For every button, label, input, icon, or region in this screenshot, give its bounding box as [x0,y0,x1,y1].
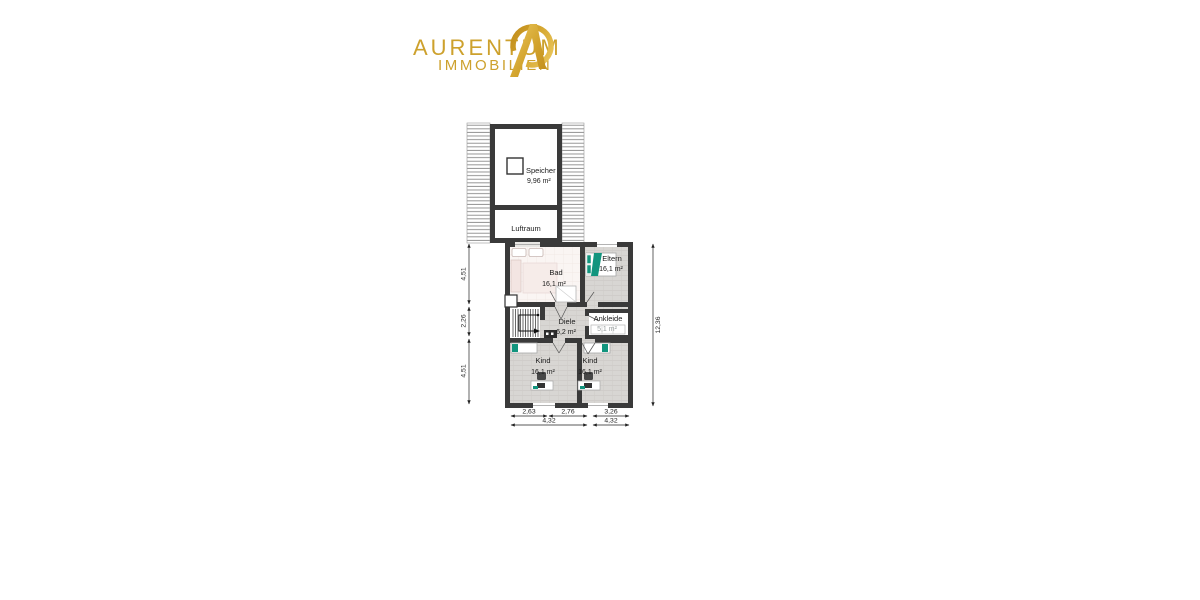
room-area-kind-left: 16,1 m² [531,369,555,376]
real-estate-floorplan-page: AURENTUM IMMOBILIEN [0,0,1200,600]
room-label-diele: Diele [558,317,575,326]
dim-bottom-mid: 2,76 [561,409,574,416]
room-area-ankleide: 5,1 m² [597,326,618,333]
dim-bottom-total-right: 4,32 [604,418,617,425]
room-area-kind-right: 16,1 m² [578,369,602,376]
room-label-kind-left: Kind [535,356,550,365]
room-area-eltern: 16,1 m² [599,266,623,273]
dim-left-top: 4,51 [461,267,468,280]
dim-bottom-right: 3,26 [604,409,617,416]
room-label-speicher: Speicher [526,166,556,175]
shaft-symbol [505,295,517,307]
sideboard-diele [544,330,557,338]
room-area-bad: 16,1 m² [542,281,566,288]
dim-bottom-left: 2,63 [522,409,535,416]
dim-right-total: 12,36 [655,316,662,333]
room-label-kind-right: Kind [582,356,597,365]
dim-left-mid: 2,26 [461,314,468,327]
brand-roof-circle-icon [504,18,558,80]
room-label-bad: Bad [549,268,562,277]
room-area-speicher: 9,96 m² [527,178,551,185]
floorplan-drawing: Speicher 9,96 m² Luftraum [455,110,705,440]
chimney-symbol [507,158,523,174]
room-label-eltern: Eltern [602,254,622,263]
brand-logo: AURENTUM IMMOBILIEN [405,18,565,88]
room-label-luftraum: Luftraum [511,224,541,233]
room-area-diele: 6,2 m² [556,329,577,336]
room-label-ankleide: Ankleide [594,314,623,323]
dim-bottom-total-left: 4,32 [542,418,555,425]
dim-left-bottom: 4,51 [461,364,468,377]
